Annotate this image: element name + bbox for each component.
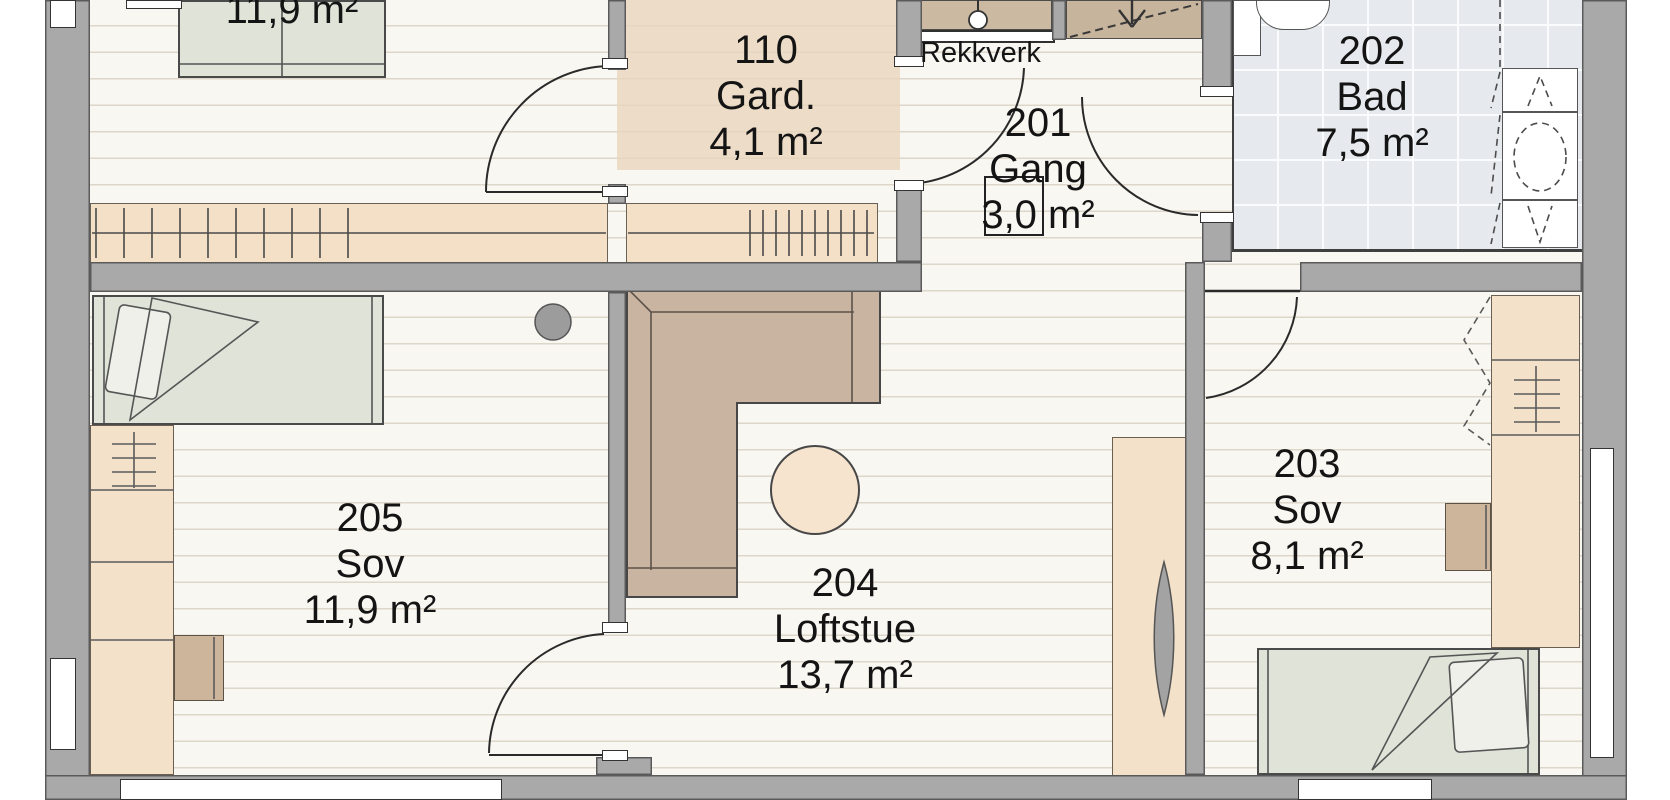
toilet-icon [1502,112,1578,200]
desk-205 [174,635,224,701]
bed-203 [1257,648,1540,775]
room-number: 205 [304,495,437,541]
window-bottom-right [1298,779,1432,800]
room-name: Gard. [709,73,822,119]
wall-mid-left [90,262,922,292]
wardrobe-band-gard [626,203,878,263]
room-label-202: 202 Bad 7,5 m² [1315,28,1428,166]
door-jamb [894,180,924,191]
wall-gard-gang-top [896,0,922,62]
room-name: Loftstue [774,606,916,652]
room-area: 7,5 m² [1315,120,1428,166]
door-jamb [602,186,628,197]
wardrobe-band-left [90,203,608,263]
bath-fixture-bottom [1502,200,1578,248]
room-area: 13,7 m² [774,652,916,698]
door-jamb [1200,86,1234,97]
room-number: 201 [981,100,1094,146]
room-label-204: 204 Loftstue 13,7 m² [774,560,916,698]
stair-divider-wall [1052,0,1066,40]
room-name: Bad [1315,74,1428,120]
window-left-bottom [50,658,76,750]
wardrobe-203 [1491,295,1580,648]
tall-cabinet-204 [1112,437,1186,776]
room-label-201: 201 Gang 3,0 m² [981,100,1094,238]
room-area: 8,1 m² [1250,533,1363,579]
room-label-205: 205 Sov 11,9 m² [304,495,437,633]
room-name: Sov [1250,487,1363,533]
room-number: 202 [1315,28,1428,74]
room-number: 204 [774,560,916,606]
wall-205-204 [608,292,626,630]
door-jamb [602,622,628,633]
stair-flight [1066,0,1202,39]
wardrobe-205 [90,425,174,775]
room-label-cut: 11,9 m² [226,0,359,33]
room-area: 4,1 m² [709,119,822,165]
room-name: Gang [981,146,1094,192]
room-label-203: 203 Sov 8,1 m² [1250,441,1363,579]
window-top-fragment [126,0,182,9]
door-jamb [1200,212,1234,223]
door-jamb [602,58,628,69]
wall-gang-bad-bottom [1202,218,1232,262]
desk-203 [1445,503,1491,571]
wall-204-203 [1185,262,1205,775]
wall-gang-bad-top [1202,0,1232,90]
wall-gard-gang-bottom [896,184,922,262]
wall-mid-right [1300,262,1582,292]
room-label-110: 110 Gard. 4,1 m² [709,27,822,165]
window-left-top [50,0,76,28]
railing-label: Rekkverk [920,38,1041,68]
room-number: 110 [709,27,822,73]
room-number: 203 [1250,441,1363,487]
window-right [1590,448,1614,758]
door-jamb [602,750,628,761]
bed-205 [92,295,384,425]
floor-plan: 11,9 m² 110 Gard. 4,1 m² 201 Gang 3,0 m²… [0,0,1670,800]
room-area: 3,0 m² [981,192,1094,238]
room-name: Sov [304,541,437,587]
room-area: 11,9 m² [304,587,437,633]
bath-fixture-top [1502,68,1578,112]
stairwell-opening [908,0,1052,30]
room-area: 11,9 m² [226,0,359,33]
window-bottom-left [120,779,502,800]
